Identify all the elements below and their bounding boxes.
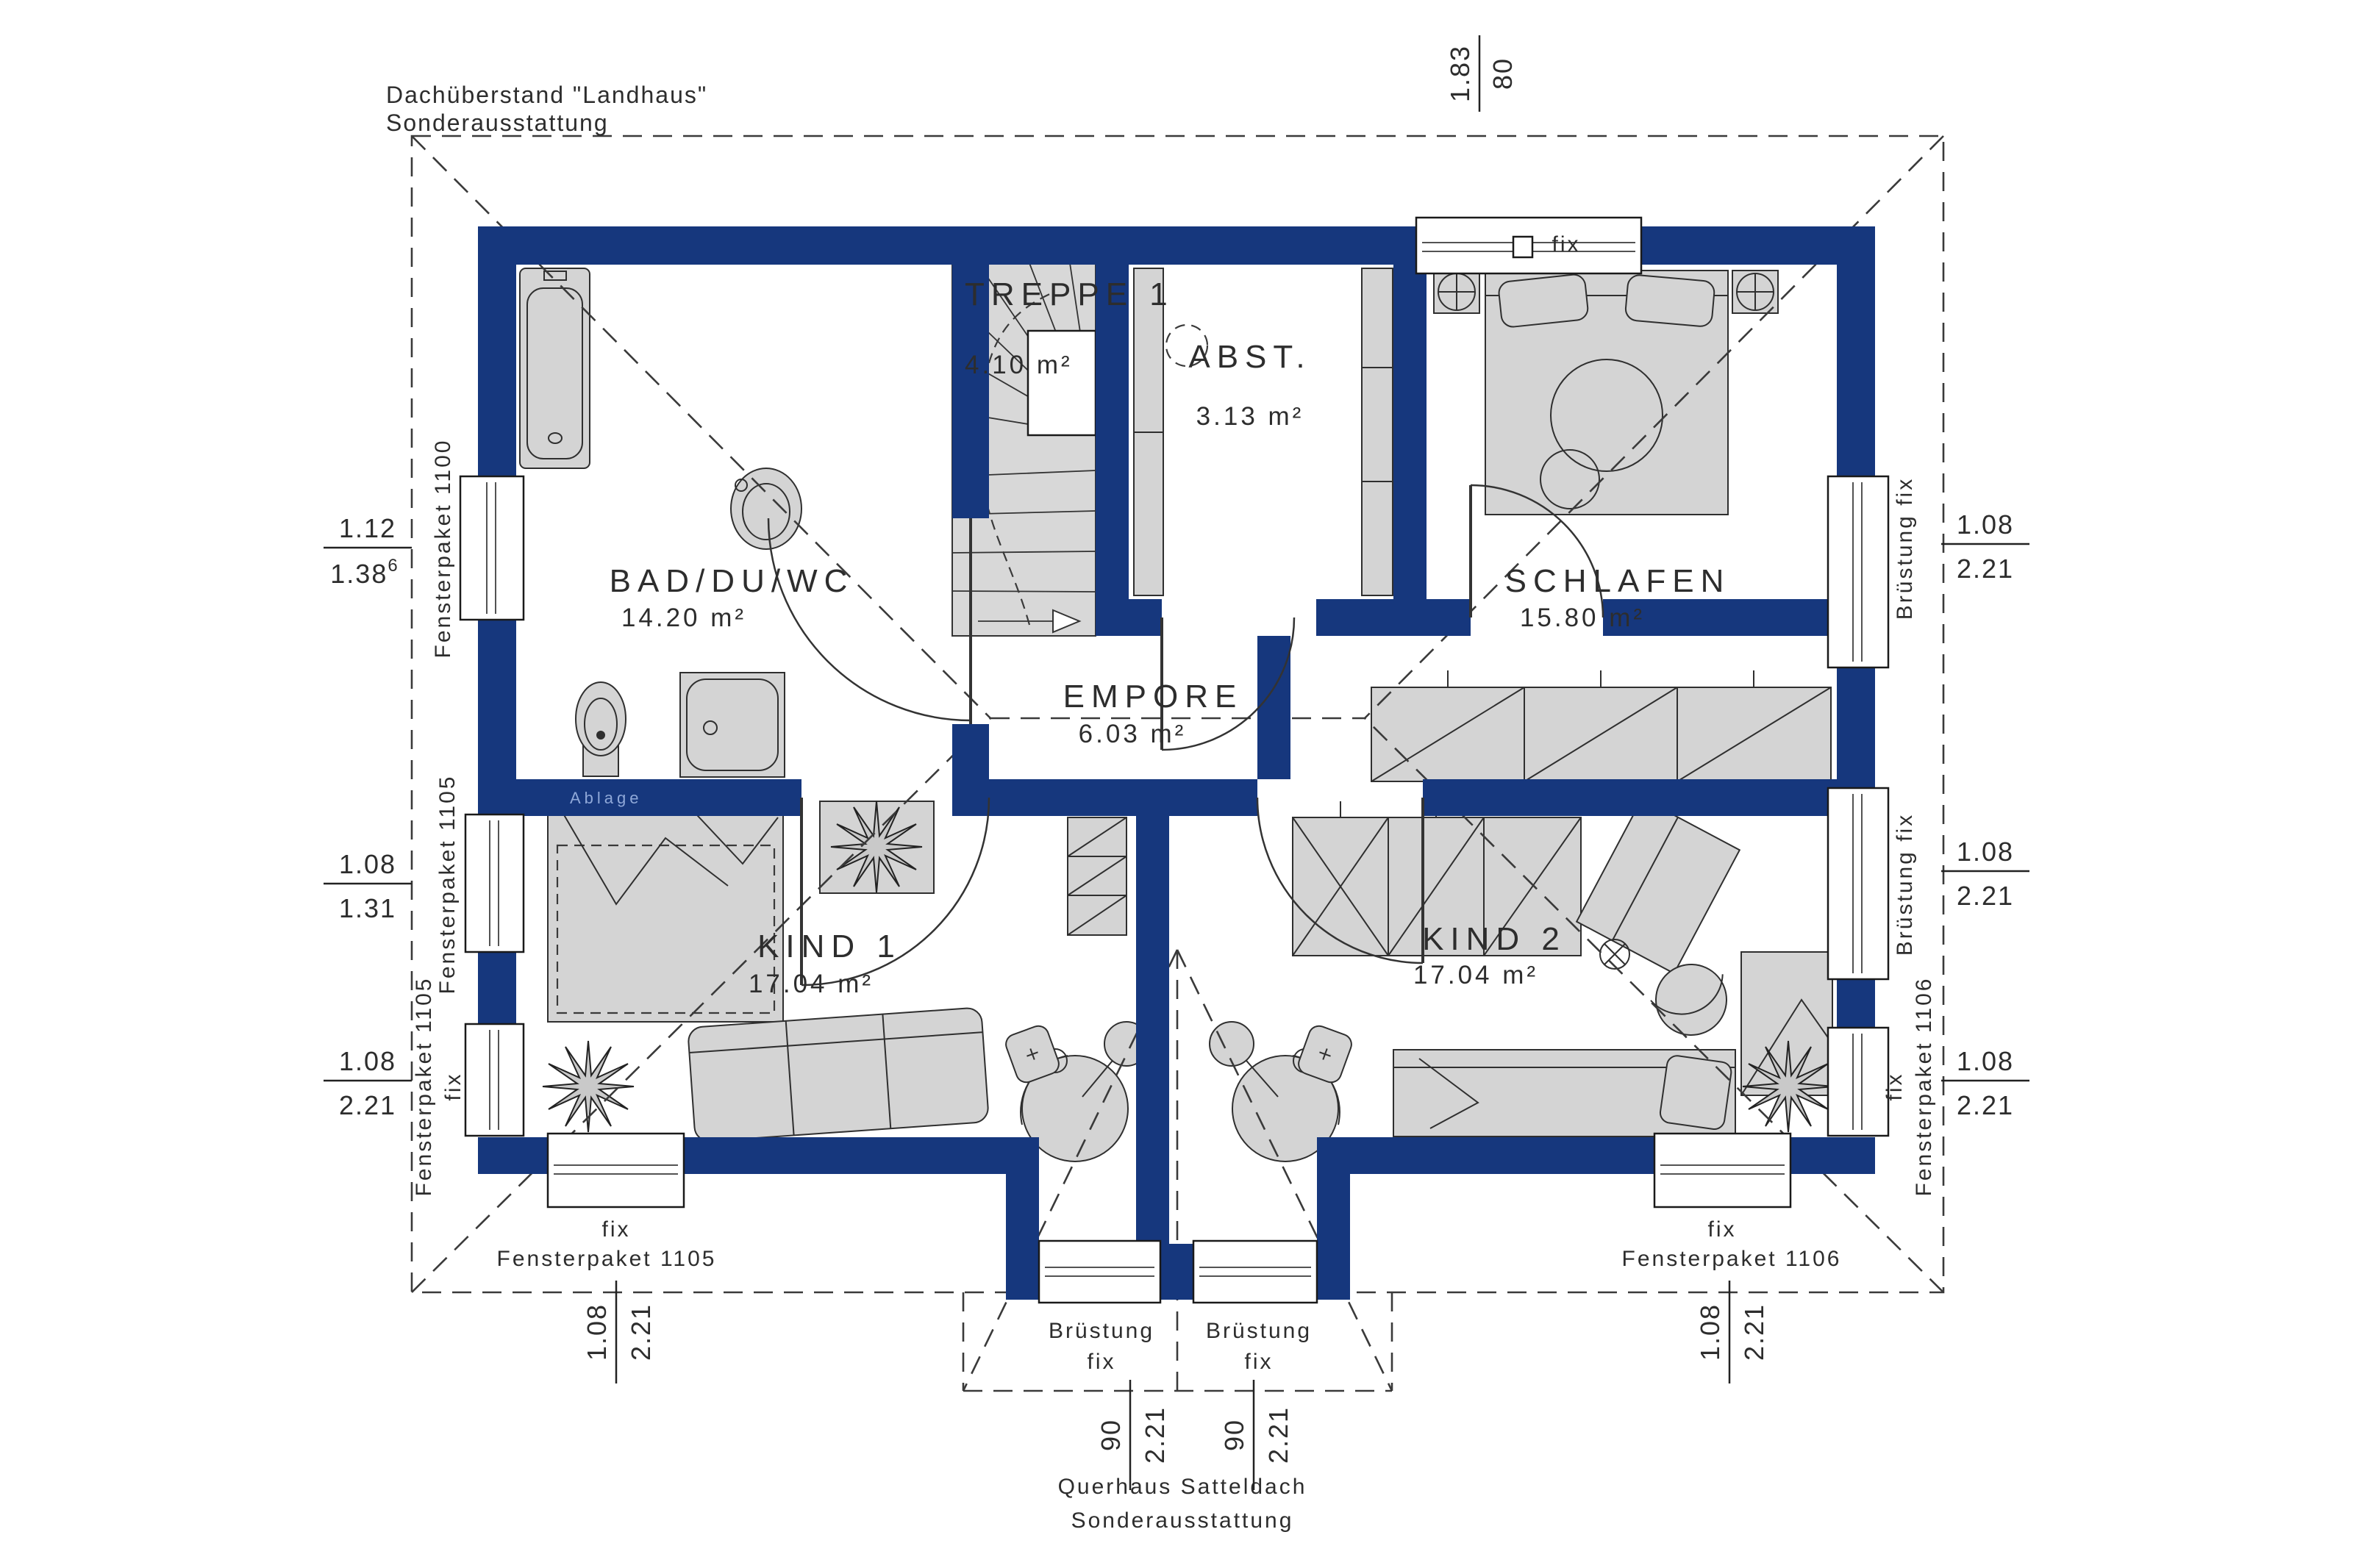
room-schlafen-area: 15.80 m² <box>1520 604 1645 632</box>
shower <box>680 673 785 777</box>
dormer-note-line2: Sonderausstattung <box>1071 1508 1294 1533</box>
dim-right-3: 1.08 2.21 <box>1941 1046 2029 1120</box>
svg-text:90: 90 <box>1096 1419 1126 1451</box>
room-empore-name: EMPORE <box>1063 679 1243 715</box>
dim-top: 1.83 80 <box>1445 35 1518 112</box>
dim-right-1: 1.08 2.21 <box>1941 509 2029 584</box>
window-dormer-left <box>1039 1241 1160 1303</box>
window-bottom-kind2-fix <box>1654 1134 1790 1207</box>
svg-text:2.21: 2.21 <box>1957 554 2014 584</box>
dormer-note-line1: Querhaus Satteldach <box>1058 1475 1307 1499</box>
floorplan-page: Ablage <box>0 0 2353 1568</box>
nightstand-left <box>1434 271 1479 313</box>
window-right-3-fix <box>1828 1028 1888 1136</box>
svg-text:2.21: 2.21 <box>1957 1090 2014 1120</box>
svg-text:2.21: 2.21 <box>626 1303 656 1361</box>
wardrobe-schlafen <box>1371 670 1831 781</box>
svg-text:90: 90 <box>1219 1419 1249 1451</box>
label-bottom-right-paket: Fensterpaket 1106 <box>1622 1247 1842 1271</box>
label-dormer-right-fix: fix <box>1245 1350 1274 1374</box>
label-fensterpaket-1105b-fix: fix <box>441 1073 465 1101</box>
desk-lamp-kind2 <box>1600 939 1629 969</box>
label-fensterpaket-1100: Fensterpaket 1100 <box>431 439 455 659</box>
plant-shelf-kind1 <box>820 801 934 893</box>
shelf-niche-label: Ablage <box>570 789 643 807</box>
bathroom-sink <box>731 468 801 549</box>
label-fensterpaket-1105: Fensterpaket 1105 <box>435 775 460 995</box>
room-kind2-name: KIND 2 <box>1422 921 1566 957</box>
double-bed <box>1485 271 1728 515</box>
label-dormer-left-fix: fix <box>1088 1350 1116 1374</box>
lounge-sofa-kind1 <box>688 1007 989 1142</box>
room-abst-area: 3.13 m² <box>1196 402 1304 431</box>
svg-text:1.12: 1.12 <box>339 513 396 543</box>
svg-text:2.21: 2.21 <box>339 1090 396 1120</box>
label-bottom-right-fix: fix <box>1708 1217 1737 1242</box>
svg-text:1.08: 1.08 <box>1957 1046 2014 1076</box>
svg-text:1.08: 1.08 <box>1695 1303 1725 1361</box>
label-bottom-left-fix: fix <box>602 1217 631 1242</box>
bed-kind2 <box>1393 1050 1735 1136</box>
room-kind1-name: KIND 1 <box>757 928 901 964</box>
dim-right-2: 1.08 2.21 <box>1941 837 2029 911</box>
dim-bottom-left: 1.08 2.21 <box>582 1281 656 1383</box>
svg-text:2.21: 2.21 <box>1957 881 2014 911</box>
svg-text:1.08: 1.08 <box>582 1303 612 1361</box>
window-dormer-right <box>1193 1241 1317 1303</box>
room-empore-area: 6.03 m² <box>1079 720 1187 748</box>
label-dormer-right-bruestung: Brüstung <box>1206 1319 1312 1343</box>
roof-note-line1: Dachüberstand "Landhaus" <box>386 82 707 108</box>
svg-text:2.21: 2.21 <box>1140 1406 1170 1464</box>
label-fensterpaket-1106: Fensterpaket 1106 <box>1912 977 1936 1197</box>
svg-text:1.08: 1.08 <box>1957 837 2014 867</box>
desk-chair-kind2 <box>1643 953 1740 1046</box>
label-top-fix: fix <box>1552 232 1581 257</box>
dim-left-3: 1.08 2.21 <box>324 1046 412 1120</box>
room-bad-area: 14.20 m² <box>621 604 746 632</box>
room-kind2-area: 17.04 m² <box>1413 961 1538 989</box>
window-right-2 <box>1828 788 1888 979</box>
shelf-kind1 <box>1068 817 1126 935</box>
svg-text:2.21: 2.21 <box>1739 1303 1769 1361</box>
roof-note-line2: Sonderausstattung <box>386 110 609 136</box>
dim-left-1: 1.12 1.386 <box>324 513 412 589</box>
room-abst-name: ABST. <box>1188 339 1311 375</box>
svg-text:80: 80 <box>1488 57 1518 90</box>
svg-text:2.21: 2.21 <box>1263 1406 1293 1464</box>
toilet <box>576 682 626 776</box>
window-left-1105 <box>465 815 524 952</box>
label-bottom-left-paket: Fensterpaket 1105 <box>497 1247 717 1271</box>
door-bad <box>768 518 971 724</box>
svg-text:1.386: 1.386 <box>330 556 399 589</box>
stairwell-void <box>1028 331 1096 435</box>
window-left-1100 <box>460 476 524 620</box>
room-schlafen-name: SCHLAFEN <box>1505 563 1731 599</box>
label-dormer-left-bruestung: Brüstung <box>1049 1319 1154 1343</box>
svg-text:1.08: 1.08 <box>339 849 396 879</box>
window-top-fix <box>1416 218 1641 273</box>
nightstand-right <box>1732 271 1778 313</box>
bathtub <box>520 268 590 468</box>
window-right-1 <box>1828 476 1888 667</box>
label-bruestung-fix-1: Brüstung fix <box>1893 477 1917 620</box>
dim-dormer-right: 90 2.21 <box>1219 1380 1293 1490</box>
room-kind1-area: 17.04 m² <box>749 970 874 998</box>
room-bad-name: BAD/DU/WC <box>610 563 854 599</box>
svg-text:1.08: 1.08 <box>339 1046 396 1076</box>
svg-text:1.31: 1.31 <box>339 893 396 923</box>
dim-left-2: 1.08 1.31 <box>324 849 412 923</box>
window-bottom-kind1-fix <box>548 1134 684 1207</box>
svg-text:1.83: 1.83 <box>1445 45 1475 102</box>
dim-dormer-left: 90 2.21 <box>1096 1380 1170 1490</box>
label-bruestung-fix-2: Brüstung fix <box>1893 813 1917 956</box>
svg-text:1.08: 1.08 <box>1957 509 2014 540</box>
dim-bottom-right: 1.08 2.21 <box>1695 1281 1769 1383</box>
room-treppe-area: 4.10 m² <box>965 351 1073 379</box>
label-right-fix: fix <box>1882 1073 1907 1101</box>
window-left-1105-fix <box>465 1024 524 1136</box>
storage-cabinets <box>1134 268 1393 595</box>
room-treppe-name: TREPPE 1 <box>965 276 1174 312</box>
label-fensterpaket-1105b: Fensterpaket 1105 <box>412 977 436 1197</box>
